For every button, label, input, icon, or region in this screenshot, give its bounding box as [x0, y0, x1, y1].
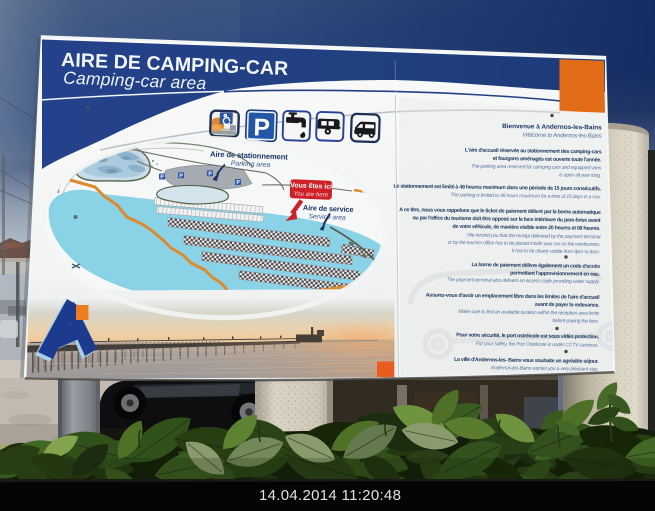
- svg-text:avant de payer la redevance.: avant de payer la redevance.: [535, 302, 600, 309]
- svg-text:P: P: [208, 171, 212, 177]
- svg-text:Welcome to Andernos-les-Bains: Welcome to Andernos-les-Bains: [523, 133, 602, 140]
- svg-text:14.04.2014 11:20:48: 14.04.2014 11:20:48: [259, 487, 401, 504]
- svg-text:permettant l'approvisionnement: permettant l'approvisionnement en eau.: [510, 270, 600, 277]
- svg-text:before paying the fees.: before paying the fees.: [552, 318, 599, 325]
- svg-text:P: P: [253, 114, 270, 142]
- svg-text:is open all year long.: is open all year long.: [559, 172, 601, 179]
- svg-text:P: P: [179, 173, 183, 179]
- svg-text:Bienvenue à Andernos-les-Bains: Bienvenue à Andernos-les-Bains: [502, 123, 602, 131]
- svg-text:P: P: [160, 175, 164, 181]
- svg-text:It has to be clearly visible f: It has to be clearly visible from 8pm to…: [512, 248, 600, 255]
- svg-text:P: P: [236, 180, 240, 186]
